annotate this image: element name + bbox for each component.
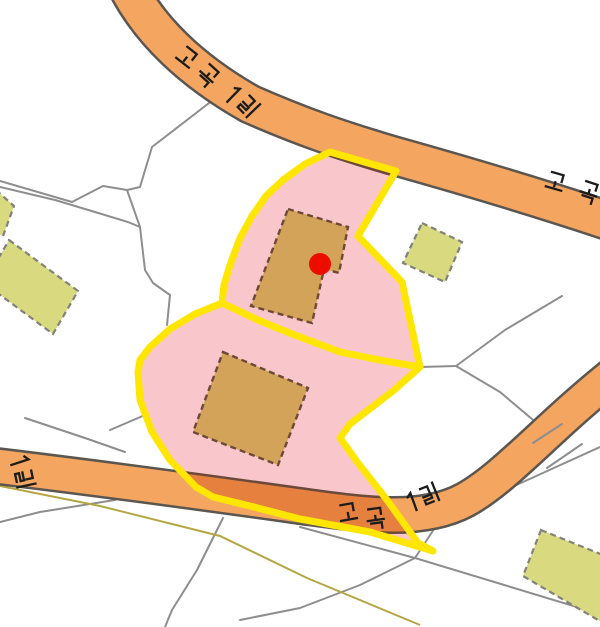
- boundary-line: [420, 366, 456, 367]
- location-marker-dot: [309, 253, 331, 275]
- map-svg[interactable]: [0, 0, 600, 627]
- map-canvas[interactable]: [0, 0, 600, 627]
